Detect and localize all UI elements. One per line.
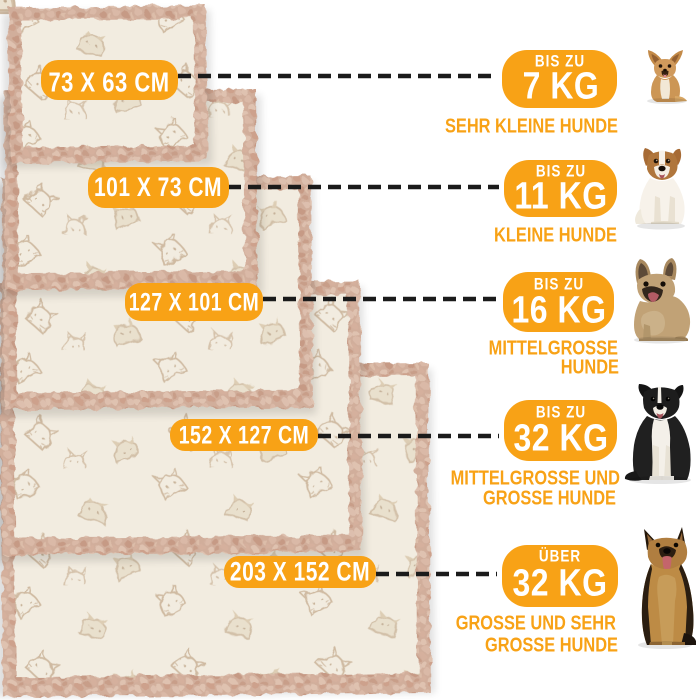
svg-text:GROSSE HUNDE: GROSSE HUNDE	[485, 633, 618, 656]
svg-text:152 X 127 CM: 152 X 127 CM	[179, 421, 310, 449]
svg-text:127 X 101 CM: 127 X 101 CM	[129, 288, 260, 316]
svg-text:203 X 152 CM: 203 X 152 CM	[230, 557, 370, 587]
svg-text:KLEINE HUNDE: KLEINE HUNDE	[494, 223, 617, 246]
svg-text:32 KG: 32 KG	[513, 562, 608, 604]
svg-text:SEHR KLEINE HUNDE: SEHR KLEINE HUNDE	[445, 114, 618, 137]
svg-text:32 KG: 32 KG	[514, 417, 609, 459]
svg-text:101 X 73 CM: 101 X 73 CM	[94, 172, 222, 202]
svg-text:GROSSE HUNDE: GROSSE HUNDE	[483, 486, 616, 509]
svg-text:HUNDE: HUNDE	[561, 355, 619, 378]
svg-text:GROSSE UND SEHR: GROSSE UND SEHR	[456, 611, 616, 634]
svg-text:7 KG: 7 KG	[523, 65, 600, 107]
svg-text:16 KG: 16 KG	[512, 289, 607, 331]
svg-text:73 X 63 CM: 73 X 63 CM	[48, 67, 169, 98]
svg-text:11 KG: 11 KG	[514, 175, 607, 217]
